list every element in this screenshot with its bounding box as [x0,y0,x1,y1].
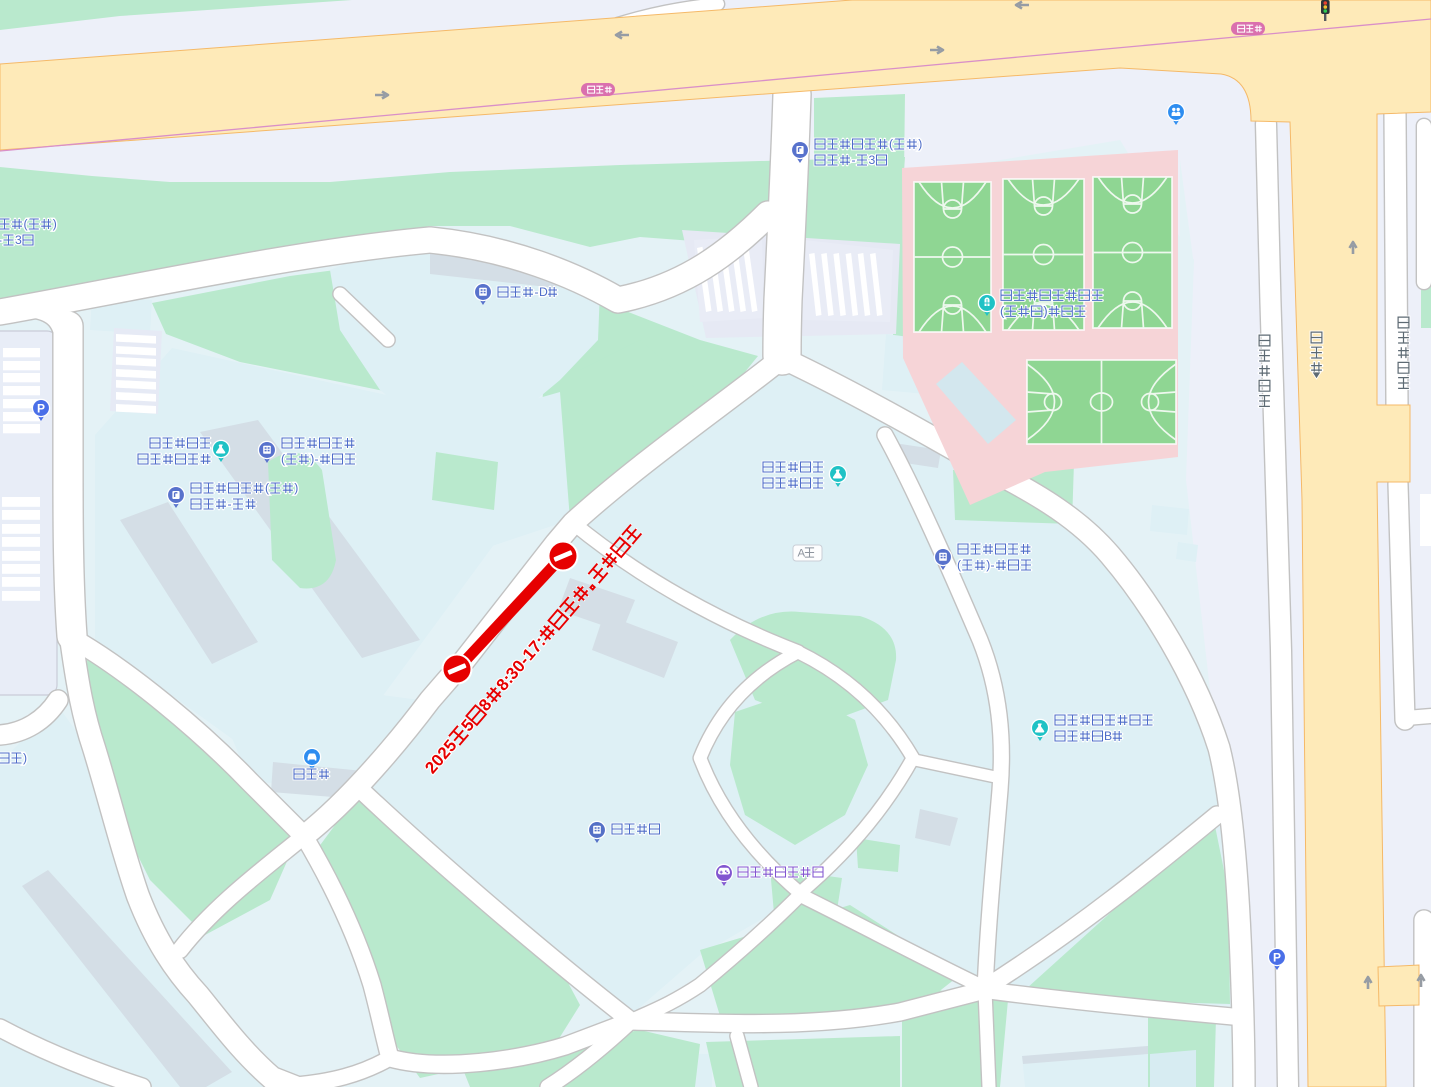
svg-text:P: P [37,401,45,415]
svg-text:B: B [1104,729,1112,743]
svg-text:A: A [798,547,806,559]
svg-text:): ) [23,751,27,765]
svg-text:-: - [228,497,232,511]
svg-text:P: P [1273,950,1281,964]
svg-text:-D: -D [535,285,549,299]
